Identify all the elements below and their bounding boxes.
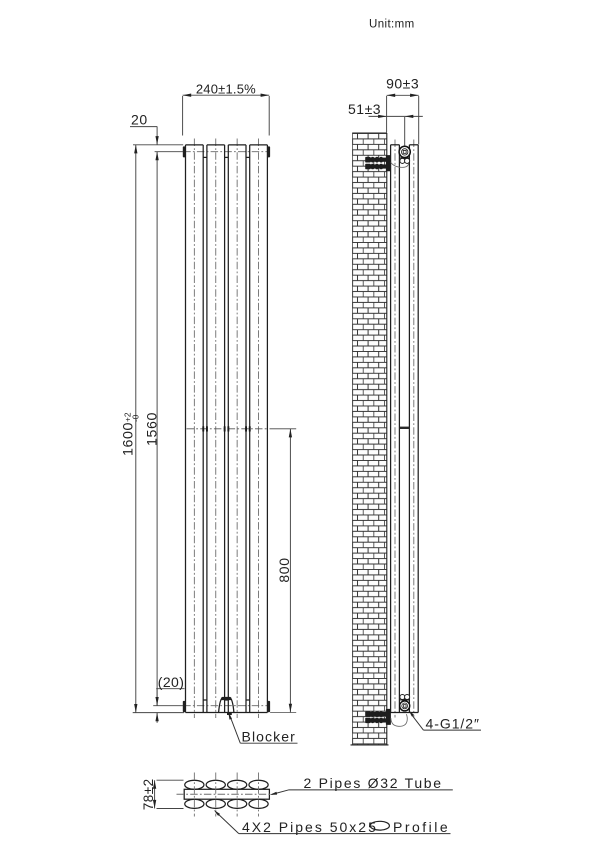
svg-text:2 Pipes Ø32 Tube: 2 Pipes Ø32 Tube <box>304 775 443 791</box>
svg-text:Blocker: Blocker <box>242 728 296 744</box>
svg-text:-0: -0 <box>131 414 141 422</box>
svg-text:4-G1/2″: 4-G1/2″ <box>426 715 480 731</box>
svg-text:(20): (20) <box>158 674 185 690</box>
svg-text:78±2: 78±2 <box>141 778 156 810</box>
svg-text:4X2 Pipes 50x25: 4X2 Pipes 50x25 <box>242 819 378 835</box>
svg-text:240±1.5%: 240±1.5% <box>196 82 256 97</box>
svg-text:20: 20 <box>131 112 148 128</box>
svg-text:90±3: 90±3 <box>386 76 419 92</box>
svg-text:Profile: Profile <box>393 819 450 835</box>
svg-text:800: 800 <box>276 557 292 582</box>
svg-text:51±3: 51±3 <box>348 101 381 117</box>
svg-text:Unit:mm: Unit:mm <box>369 19 415 31</box>
svg-text:1600: 1600 <box>120 422 136 456</box>
svg-text:1560: 1560 <box>144 412 160 446</box>
